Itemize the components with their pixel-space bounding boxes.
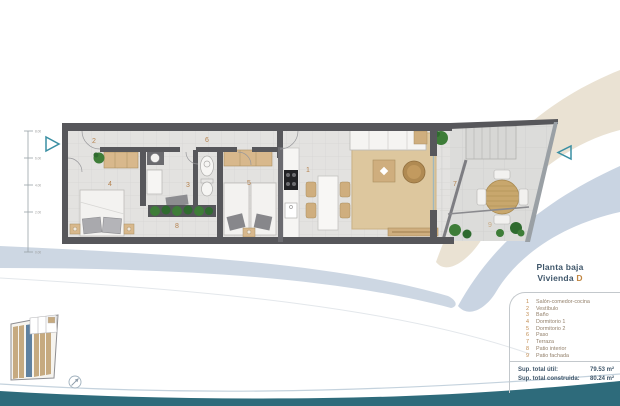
legend-row: 1Salón-comedor-cocina (521, 299, 617, 306)
total-util-value: 79.53 m² (590, 366, 614, 375)
room-label-1: 1 (306, 167, 310, 174)
unit-letter: D (576, 273, 582, 283)
legend-row: 3Baño (521, 312, 617, 319)
plan-title-block: Planta baja Vivienda D (498, 262, 620, 284)
entrance-arrow-left-icon (46, 137, 59, 151)
surface-totals: Sup. total útil: 79.53 m² Sup. total con… (518, 366, 614, 384)
floor-title: Planta baja (498, 262, 620, 273)
dim-label: 2.00 (35, 211, 41, 215)
room-legend-list: 1Salón-comedor-cocina 2Vestíbulo 3Baño 4… (521, 299, 617, 359)
dim-label: 0.00 (35, 251, 41, 255)
total-built-value: 80.24 m² (590, 375, 614, 384)
room-label-2: 2 (92, 138, 96, 145)
site-key-plan (11, 315, 58, 380)
room-label-4: 4 (108, 181, 112, 188)
room-label-6: 6 (205, 137, 209, 144)
room-label-9: 9 (488, 222, 492, 229)
dim-label: 4.00 (35, 184, 41, 188)
dimension-chain: 8.00 6.00 4.00 2.00 0.00 (24, 130, 41, 255)
legend-row: 4Dormitorio 1 (521, 319, 617, 326)
totals-divider (509, 361, 620, 362)
legend-row: 9Patio fachada (521, 353, 617, 360)
total-built-row: Sup. total construida: 80.24 m² (518, 375, 614, 384)
total-util-row: Sup. total útil: 79.53 m² (518, 366, 614, 375)
dim-label: 8.00 (35, 130, 41, 134)
unit-title: Vivienda D (498, 273, 620, 284)
room-label-7: 7 (453, 181, 457, 188)
room-label-3: 3 (186, 182, 190, 189)
legend-row: 5Dormitorio 2 (521, 326, 617, 333)
room-label-5: 5 (247, 180, 251, 187)
floor-plan: 1 2 3 4 5 6 7 8 9 (46, 118, 571, 248)
legend-row: 2Vestíbulo (521, 306, 617, 313)
patio-interior-planter (148, 205, 216, 217)
total-built-label: Sup. total construida: (518, 375, 580, 384)
floorplan-page: 8.00 6.00 4.00 2.00 0.00 (0, 0, 620, 406)
legend-row: 7Terraza (521, 339, 617, 346)
kitchen (283, 148, 299, 241)
room-label-8: 8 (175, 223, 179, 230)
legend-row: 8Patio interior (521, 346, 617, 353)
compass-icon (69, 376, 81, 388)
total-util-label: Sup. total útil: (518, 366, 558, 375)
legend-row: 6Paso (521, 332, 617, 339)
dim-label: 6.00 (35, 157, 41, 161)
